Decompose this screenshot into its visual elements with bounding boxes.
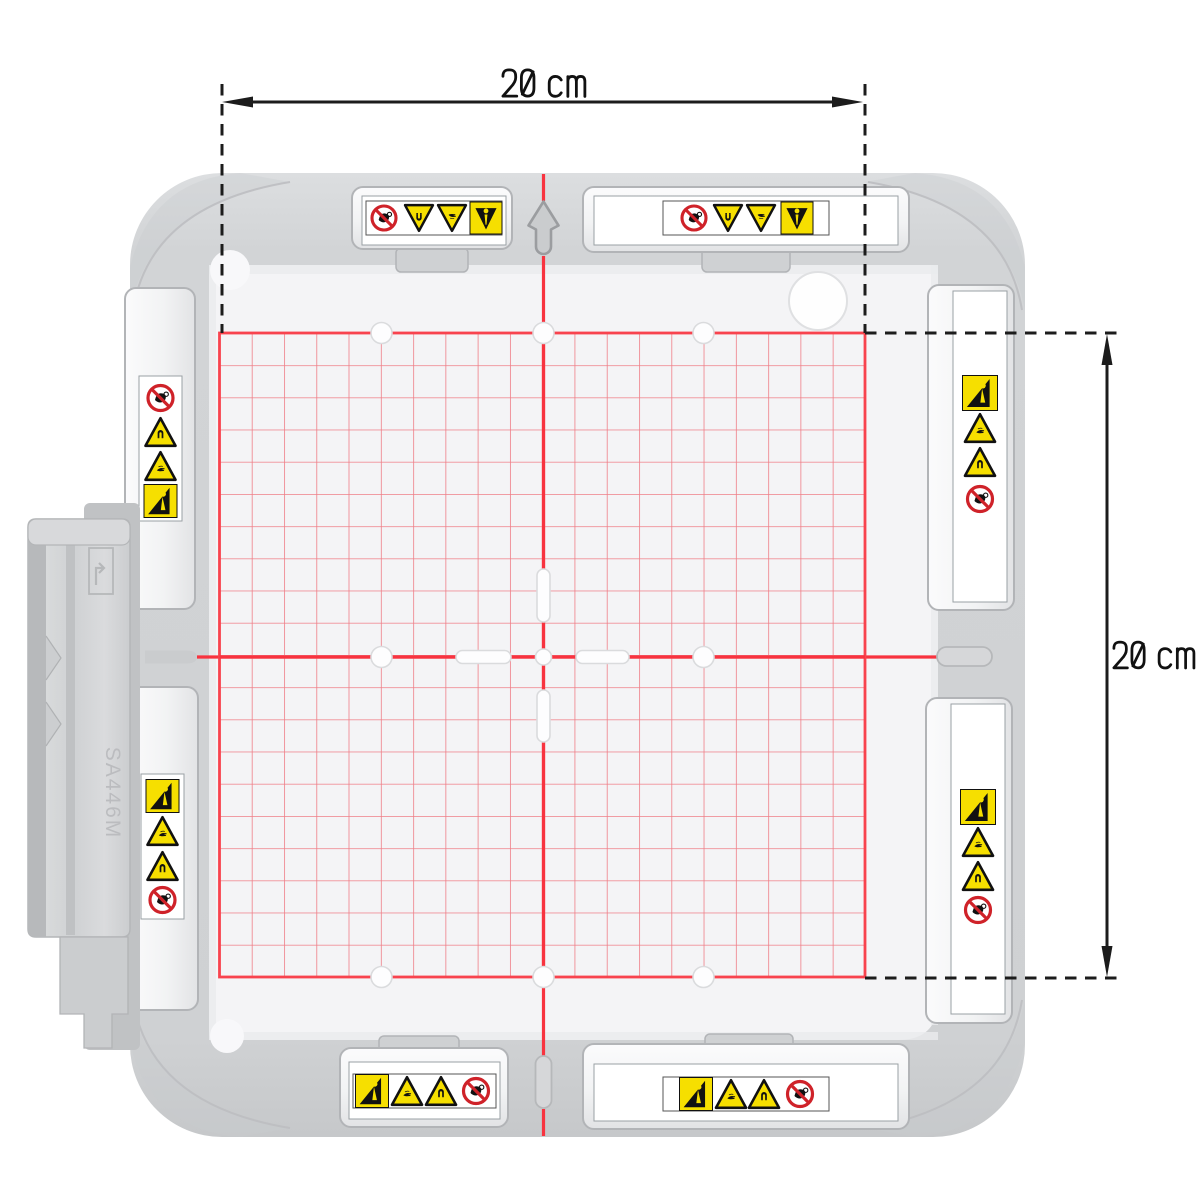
svg-text:SA446M: SA446M: [101, 747, 124, 840]
